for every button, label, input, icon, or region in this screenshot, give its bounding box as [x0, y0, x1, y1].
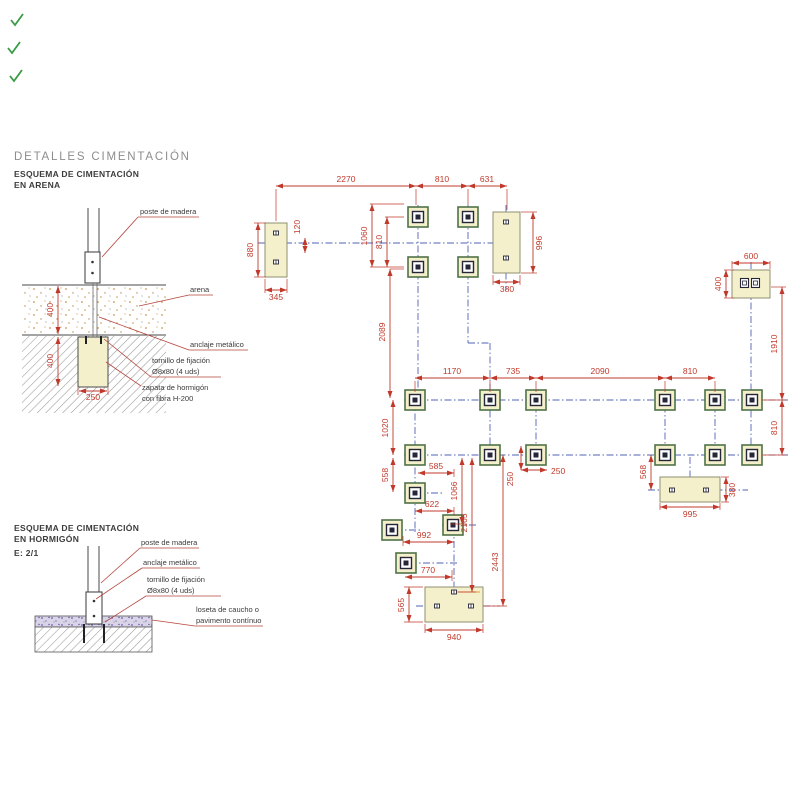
anchor-mark	[274, 260, 279, 264]
anchor-mark	[469, 604, 474, 608]
label-tornillo-arena-2: Ø8x80 (4 uds)	[152, 367, 200, 376]
concrete-footing	[78, 337, 108, 387]
label-tornillo-arena-1: tornillo de fijación	[152, 356, 210, 365]
footing-pad	[655, 445, 675, 465]
anchor-mark	[452, 590, 457, 594]
footing-pad	[705, 445, 725, 465]
dim-880: 880	[245, 243, 255, 257]
anchor-mark	[435, 604, 440, 608]
arena-subtitle-1: ESQUEMA DE CIMENTACIÓN	[14, 168, 139, 179]
dim-2443: 2443	[490, 552, 500, 571]
anchor-mark	[670, 488, 675, 492]
dim-1020: 1020	[380, 418, 390, 437]
dim-1066: 1066	[449, 481, 459, 500]
dim-2089: 2089	[377, 322, 387, 341]
footing-pad	[526, 390, 546, 410]
anchor-mark	[274, 231, 279, 235]
footing-pad	[405, 483, 425, 503]
hormigon-scale: E: 2/1	[14, 548, 38, 558]
hormigon-title-2: EN HORMIGÓN	[14, 533, 79, 544]
label-arena: arena	[190, 285, 210, 294]
footing-pad	[458, 207, 478, 227]
foundation-drawing: DETALLES CIMENTACIÓN ESQUEMA DE CIMENTAC…	[0, 0, 800, 800]
label-zapata-2: con fibra H-200	[142, 394, 193, 403]
label-tornillo-hormigon-1: tornillo de fijación	[147, 575, 205, 584]
footing-pad	[526, 445, 546, 465]
anchor-mark	[504, 256, 509, 260]
dim-810-cluster: 810	[374, 235, 384, 249]
arena-subtitle-2: EN ARENA	[14, 180, 60, 190]
anchor-mark	[704, 488, 709, 492]
dim-631: 631	[480, 174, 494, 184]
anchor-plate	[85, 252, 100, 283]
label-poste-arena: poste de madera	[140, 207, 197, 216]
dim-810-mid: 810	[683, 366, 697, 376]
dim-995: 995	[683, 509, 697, 519]
dim-footing-depth: 400	[45, 354, 55, 368]
dim-1910: 1910	[769, 334, 779, 353]
footing-pad	[742, 390, 762, 410]
dim-345: 345	[269, 292, 283, 302]
footing-pad	[405, 445, 425, 465]
footing-pad	[408, 207, 428, 227]
concrete-slab	[35, 627, 152, 652]
footing-pad	[655, 390, 675, 410]
dim-565: 565	[396, 598, 406, 612]
dim-sand-depth: 400	[45, 303, 55, 317]
footing-pad	[480, 445, 500, 465]
label-anclaje-hormigon: anclaje metálico	[143, 558, 197, 567]
footing-pad	[480, 390, 500, 410]
green-mark-icon	[8, 42, 20, 53]
anchor-mark	[504, 220, 509, 224]
dim-380-right: 380	[500, 284, 514, 294]
footing-pad	[742, 445, 762, 465]
label-loseta-1: loseta de caucho o	[196, 605, 259, 614]
dim-1170: 1170	[443, 366, 462, 376]
dim-250-v: 250	[505, 472, 515, 486]
dim-2165: 2165	[459, 513, 469, 532]
green-mark-icon	[10, 70, 22, 81]
dim-810-top: 810	[435, 174, 449, 184]
footing-rect-995	[660, 477, 720, 502]
drawing-page: DETALLES CIMENTACIÓN ESQUEMA DE CIMENTAC…	[0, 0, 800, 800]
footing-pads	[382, 207, 762, 573]
label-poste-hormigon: poste de madera	[141, 538, 198, 547]
dim-600: 600	[744, 251, 758, 261]
dim-622: 622	[425, 499, 439, 509]
footing-rects	[265, 212, 770, 622]
dim-2270: 2270	[337, 174, 356, 184]
green-mark-icon	[11, 14, 23, 25]
dim-810-fr: 810	[769, 421, 779, 435]
footing-pad	[382, 520, 402, 540]
hormigon-title-1: ESQUEMA DE CIMENTACIÓN	[14, 522, 139, 533]
dim-2090: 2090	[591, 366, 610, 376]
hormigon-section: ESQUEMA DE CIMENTACIÓN EN HORMIGÓN E: 2/…	[14, 522, 263, 652]
plan-view: 2270 810 631 880 345 120 1060 810	[245, 174, 788, 642]
dim-996: 996	[534, 236, 544, 250]
dim-770: 770	[421, 565, 435, 575]
dim-120: 120	[292, 220, 302, 234]
sand-layer	[22, 286, 166, 335]
dim-250-h: 250	[551, 466, 565, 476]
label-loseta-2: pavimento contínuo	[196, 616, 261, 625]
dim-585: 585	[429, 461, 443, 471]
titles: DETALLES CIMENTACIÓN ESQUEMA DE CIMENTAC…	[14, 150, 191, 190]
dim-1060: 1060	[359, 226, 369, 245]
dim-992: 992	[417, 530, 431, 540]
footing-pad	[705, 390, 725, 410]
label-anclaje-arena: anclaje metálico	[190, 340, 244, 349]
dim-735: 735	[506, 366, 520, 376]
dim-380-995: 380	[727, 483, 737, 497]
green-marks	[8, 14, 23, 81]
footing-pad	[458, 257, 478, 277]
footing-pad	[405, 390, 425, 410]
footing-pad	[396, 553, 416, 573]
dim-940: 940	[447, 632, 461, 642]
dim-400-fr: 400	[713, 277, 723, 291]
label-zapata-1: zapata de hormigón	[142, 383, 208, 392]
label-tornillo-hormigon-2: Ø8x80 (4 uds)	[147, 586, 195, 595]
page-title: DETALLES CIMENTACIÓN	[14, 150, 191, 163]
dim-558: 558	[380, 468, 390, 482]
centerlines	[258, 205, 788, 619]
dim-footing-width: 250	[86, 392, 100, 402]
footing-pad	[408, 257, 428, 277]
dim-568: 568	[638, 465, 648, 479]
arena-section: 400 400 250 poste de madera arena anclaj…	[22, 207, 248, 413]
